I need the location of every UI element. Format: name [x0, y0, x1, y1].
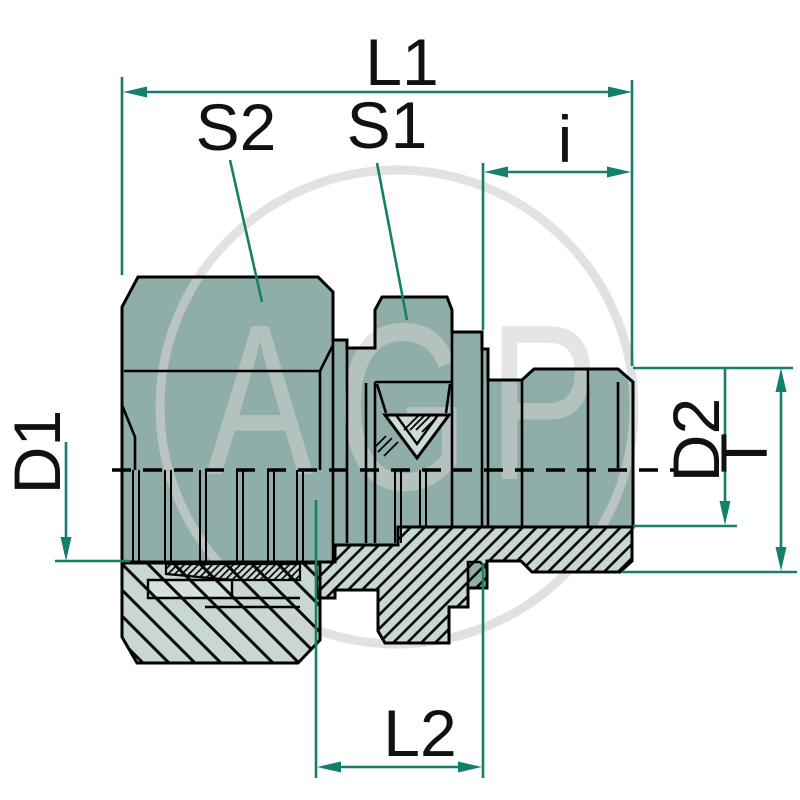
arrow-i-left: [484, 167, 508, 178]
arrow-l2-left: [317, 762, 341, 773]
arrow-l1-left: [123, 87, 147, 98]
arrow-d1-down: [61, 537, 72, 561]
dim-label-i: i: [558, 102, 573, 176]
technical-drawing-canvas: A G P: [0, 0, 800, 800]
watermark-letter-p: P: [488, 278, 599, 527]
arrow-d2-down: [776, 547, 787, 571]
dim-label-s2: S2: [196, 90, 277, 164]
arrow-i-right: [607, 167, 631, 178]
fitting-technical-drawing: A G P: [0, 0, 800, 800]
dim-label-t: T: [707, 433, 781, 473]
dim-label-l2: L2: [383, 696, 456, 770]
arrow-d2-up: [776, 368, 787, 392]
arrow-l2-right: [458, 762, 482, 773]
arrow-t-down: [720, 501, 731, 525]
dim-label-s1: S1: [347, 88, 428, 162]
watermark-letter-g: G: [336, 273, 469, 539]
arrow-l1-right: [608, 87, 632, 98]
dim-label-d1: D1: [0, 410, 74, 494]
